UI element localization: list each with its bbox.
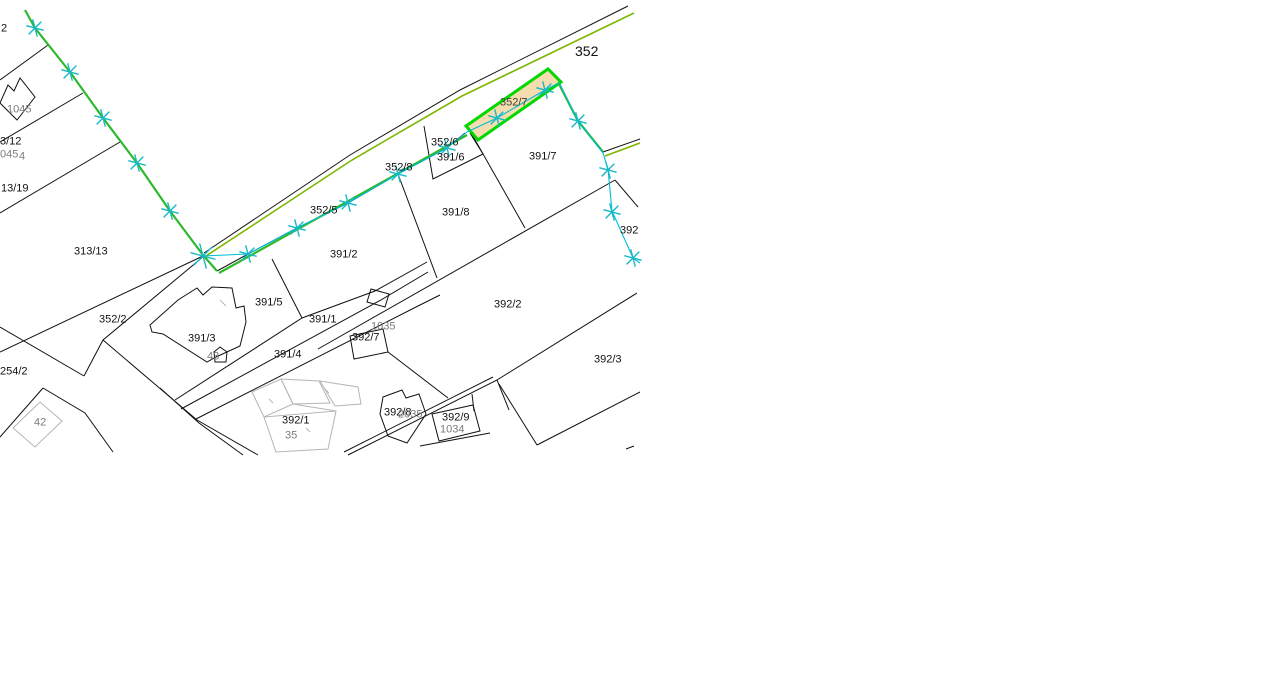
parcel-label-391-7: 391/7 [529,150,557,162]
page-background: 210453/12045413/19313/13352352/7352/6391… [0,0,1269,689]
boundary-392-junction-2 [472,394,474,411]
building-number-43: 43 [207,350,219,362]
building-draft-divider [293,404,336,411]
building-number-045-4: 4 [19,150,25,162]
survey-point-star [161,202,178,219]
draft-tick-2 [306,428,310,432]
boundary-391-5-east [272,259,302,318]
parcel-label-391-8: 391/8 [442,206,470,218]
building-draft-b [281,379,330,404]
building-number-35: 35 [285,429,297,441]
survey-chain-nw [25,10,217,271]
boundary-west-1 [0,45,48,80]
cadastral-map-canvas[interactable]: 210453/12045413/19313/13352352/7352/6391… [0,0,1269,689]
road-lower-edge-east [558,82,603,152]
building-number-42: 42 [34,416,46,428]
parcel-label-13-19: 13/19 [1,182,29,194]
layer-survey-stars [26,19,641,268]
building-draft-c [320,381,361,406]
star-arm [627,252,640,265]
parcel-label-392-9: 392/9 [442,411,470,423]
parcel-label-352-7: 352/7 [500,96,528,108]
street-west-edge [103,340,258,455]
parcel-label-392-2: 392/2 [494,298,522,310]
boundary-392-3-south [537,392,640,445]
building-number-1034: 1034 [440,423,464,435]
road-top-accent [206,13,634,256]
parcel-label-352: 352 [575,43,599,59]
parcel-label-392-7: 392/7 [352,331,380,343]
draft-tick-391-3 [220,300,226,306]
survey-point-star [339,194,356,211]
boundary-392-1-south [499,384,537,445]
parcel-label-3-12: 3/12 [0,135,21,147]
boundary-391-2-east [398,174,437,278]
building-391-3 [150,287,246,362]
boundary-long-392-2 [318,180,615,349]
survey-point-star [128,154,145,171]
parcel-label-391-5: 391/5 [255,296,283,308]
boundary-392-east [615,180,638,207]
parcel-label-352-6: 352/6 [431,136,459,148]
boundary-sw-2 [43,388,113,452]
mark-bottom-right [626,446,634,449]
building-number-045: 045 [0,148,18,160]
parcel-label-391-3: 391/3 [188,332,216,344]
parcel-label-352-5: 352/5 [310,204,338,216]
parcel-label-391-6: 391/6 [437,151,465,163]
parcel-label-392-1: 392/1 [282,414,310,426]
boundary-313-13-south [0,256,203,352]
parcel-label-352-8: 352/8 [385,161,413,173]
survey-line-road [203,132,467,256]
parcel-label-254-2: 254/2 [0,365,28,377]
survey-point-star [94,109,111,126]
boundary-392-7-se [388,352,448,398]
building-392-2-annex [367,289,389,307]
survey-point-star [599,161,616,178]
building-number-1045: 1045 [7,103,31,115]
parcel-label-391-4: 391/4 [274,348,302,360]
draft-tick-1 [269,399,273,403]
building-draft-a [252,379,293,417]
street-line-b [181,272,428,409]
parcel-label-391-1: 391/1 [309,313,337,325]
boundary-sw-1 [0,388,43,437]
parcel-label-392: 392 [620,224,638,236]
parcel-label-352-2: 352/2 [99,313,127,325]
street-se-edge-1 [348,380,497,455]
survey-point-star [288,219,305,236]
boundary-392-junction-1 [497,380,509,410]
layer-chain_green [25,10,603,273]
parcel-label-391-2: 391/2 [330,248,358,260]
survey-point-star [624,249,641,266]
parcel-label-2: 2 [1,22,7,34]
parcel-label-392-3: 392/3 [594,353,622,365]
parcel-label-313-13: 313/13 [74,245,108,257]
building-number-2035: 2035 [398,408,422,420]
